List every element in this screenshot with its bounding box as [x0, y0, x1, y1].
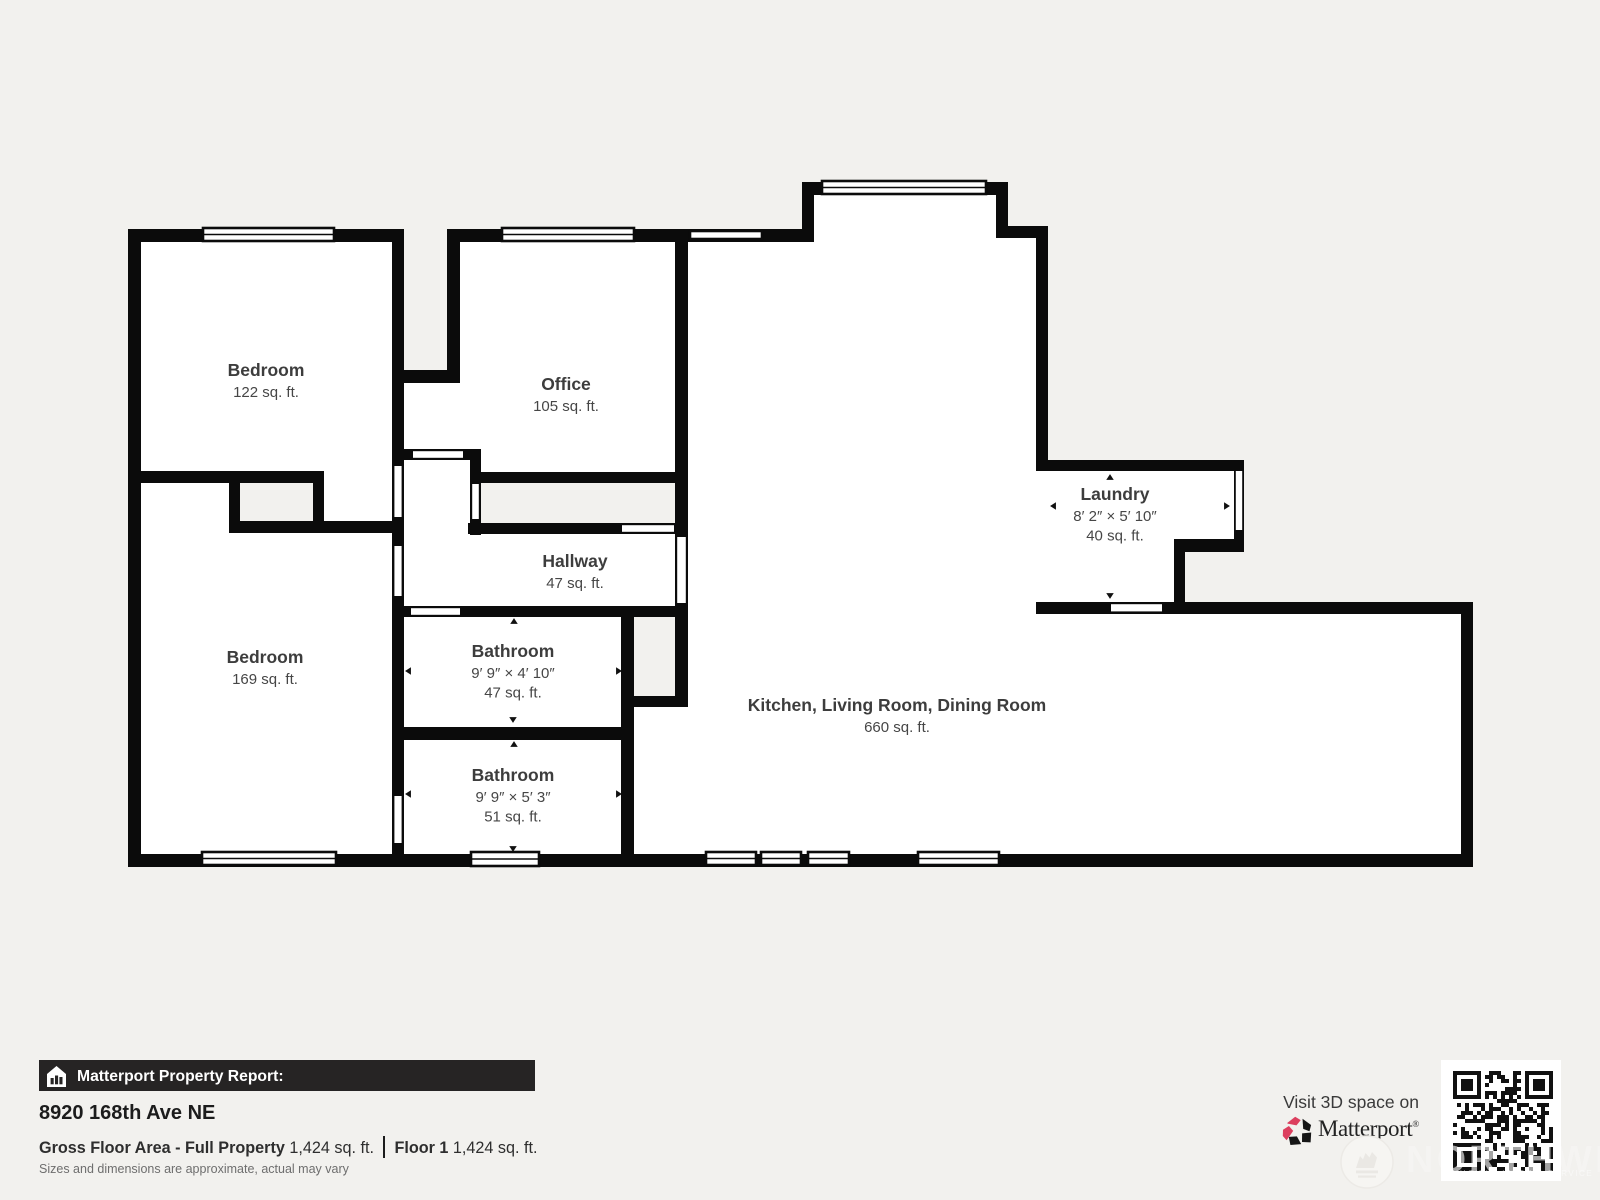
svg-text:MULTIPLE LISTING SERVICE: MULTIPLE LISTING SERVICE: [1448, 1169, 1593, 1178]
